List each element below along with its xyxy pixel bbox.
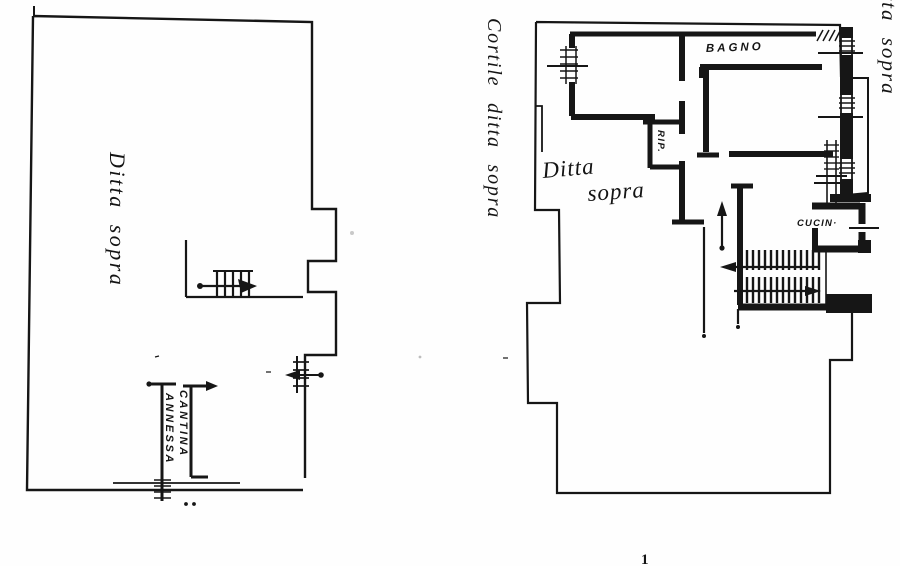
windows-right — [816, 27, 863, 196]
floor-dots — [184, 502, 196, 506]
apartment-plan: BAGNO RIP. CUCIN· Ditta sopra Cortile di… — [419, 0, 900, 493]
staircase-left — [197, 271, 257, 296]
floor-plan-drawing: Ditta sopra ANNESSA CANTINA — [0, 0, 900, 566]
partition-wall — [697, 67, 719, 155]
cantina-label: CANTINA — [177, 390, 189, 458]
wall-pier — [840, 27, 853, 38]
cucina-label: CUCIN· — [797, 218, 837, 229]
scan-specks-right — [419, 356, 508, 359]
wall-pier — [840, 55, 853, 95]
corridor-wall — [672, 32, 704, 222]
bedroom-walls — [571, 34, 655, 117]
page-mark: 1 — [641, 552, 649, 566]
rip-label: RIP. — [655, 130, 666, 153]
bagno-walls — [700, 67, 822, 78]
wall-pier — [840, 179, 853, 196]
apartment-outline — [527, 22, 852, 493]
structural-walls — [570, 32, 833, 305]
ditta-sopra-edge-label: ditta sopra — [877, 0, 900, 96]
outline-step — [536, 106, 542, 152]
stair-arrow-upper — [720, 262, 818, 272]
wall-block — [858, 240, 871, 253]
wall-pier — [840, 113, 853, 159]
scanned-floor-plan-page: Ditta sopra ANNESSA CANTINA — [0, 0, 900, 566]
cantina-walls — [113, 381, 240, 506]
annessa-label: ANNESSA — [163, 392, 175, 465]
sopra-label: sopra — [587, 177, 646, 206]
ditta-label: Ditta — [540, 154, 595, 184]
ditta-sopra-label: Ditta sopra — [105, 151, 130, 287]
cantina-plan: Ditta sopra ANNESSA CANTINA — [27, 6, 354, 506]
up-arrow — [717, 201, 727, 251]
window-left — [547, 46, 588, 84]
top-corner-hatch — [817, 30, 840, 41]
cortile-ditta-sopra-label: Cortile ditta sopra — [483, 18, 505, 219]
bagno-label: BAGNO — [706, 41, 764, 55]
scan-specks-left — [155, 231, 354, 372]
black-band — [826, 294, 872, 313]
stair-hall-wall — [731, 186, 753, 305]
